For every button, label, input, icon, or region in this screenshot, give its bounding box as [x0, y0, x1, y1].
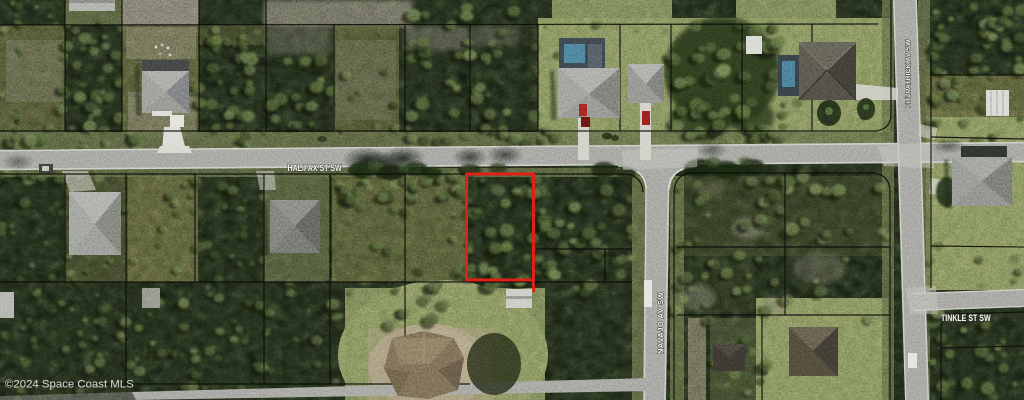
svg-text:©2024 Space Coast MLS: ©2024 Space Coast MLS	[5, 379, 134, 391]
svg-text:FITZPATRICK AV SW: FITZPATRICK AV SW	[905, 39, 912, 108]
svg-text:NAVAJO AV SW: NAVAJO AV SW	[656, 292, 665, 354]
svg-text:HALIFAX ST SW: HALIFAX ST SW	[288, 163, 342, 173]
svg-text:TINKLE ST SW: TINKLE ST SW	[941, 313, 991, 323]
